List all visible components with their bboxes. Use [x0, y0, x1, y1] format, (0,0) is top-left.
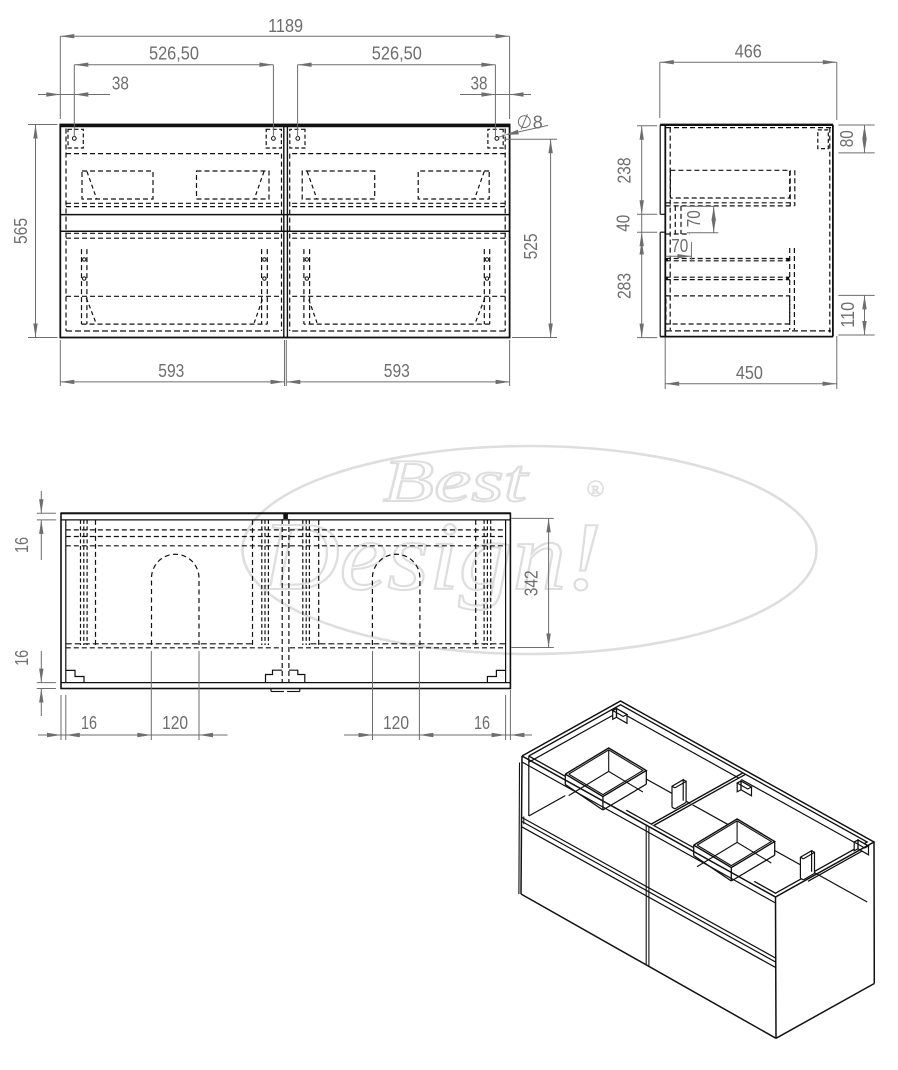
svg-text:238: 238	[615, 158, 635, 184]
svg-text:342: 342	[522, 570, 542, 596]
svg-text:80: 80	[837, 130, 857, 147]
svg-text:120: 120	[383, 713, 409, 733]
svg-text:16: 16	[81, 713, 97, 733]
svg-text:593: 593	[158, 361, 184, 381]
svg-text:16: 16	[12, 650, 32, 666]
svg-text:40: 40	[613, 215, 633, 232]
svg-text:565: 565	[11, 218, 31, 244]
svg-text:16: 16	[474, 713, 490, 733]
svg-text:526,50: 526,50	[149, 44, 199, 64]
svg-text:70: 70	[684, 210, 704, 227]
svg-text:16: 16	[12, 537, 32, 553]
svg-text:525: 525	[521, 233, 541, 259]
svg-text:593: 593	[384, 361, 410, 381]
svg-text:1189: 1189	[268, 16, 303, 36]
svg-text:526,50: 526,50	[372, 44, 422, 64]
svg-text:450: 450	[736, 363, 763, 383]
svg-text:38: 38	[112, 74, 129, 94]
svg-text:70: 70	[671, 236, 688, 256]
svg-text:Design!: Design!	[260, 503, 602, 611]
svg-text:466: 466	[735, 42, 762, 62]
svg-text:R: R	[592, 483, 600, 497]
svg-text:38: 38	[471, 74, 488, 94]
svg-text:120: 120	[162, 713, 188, 733]
svg-text:110: 110	[838, 302, 858, 328]
svg-text:8: 8	[533, 113, 543, 133]
svg-text:283: 283	[615, 273, 635, 299]
